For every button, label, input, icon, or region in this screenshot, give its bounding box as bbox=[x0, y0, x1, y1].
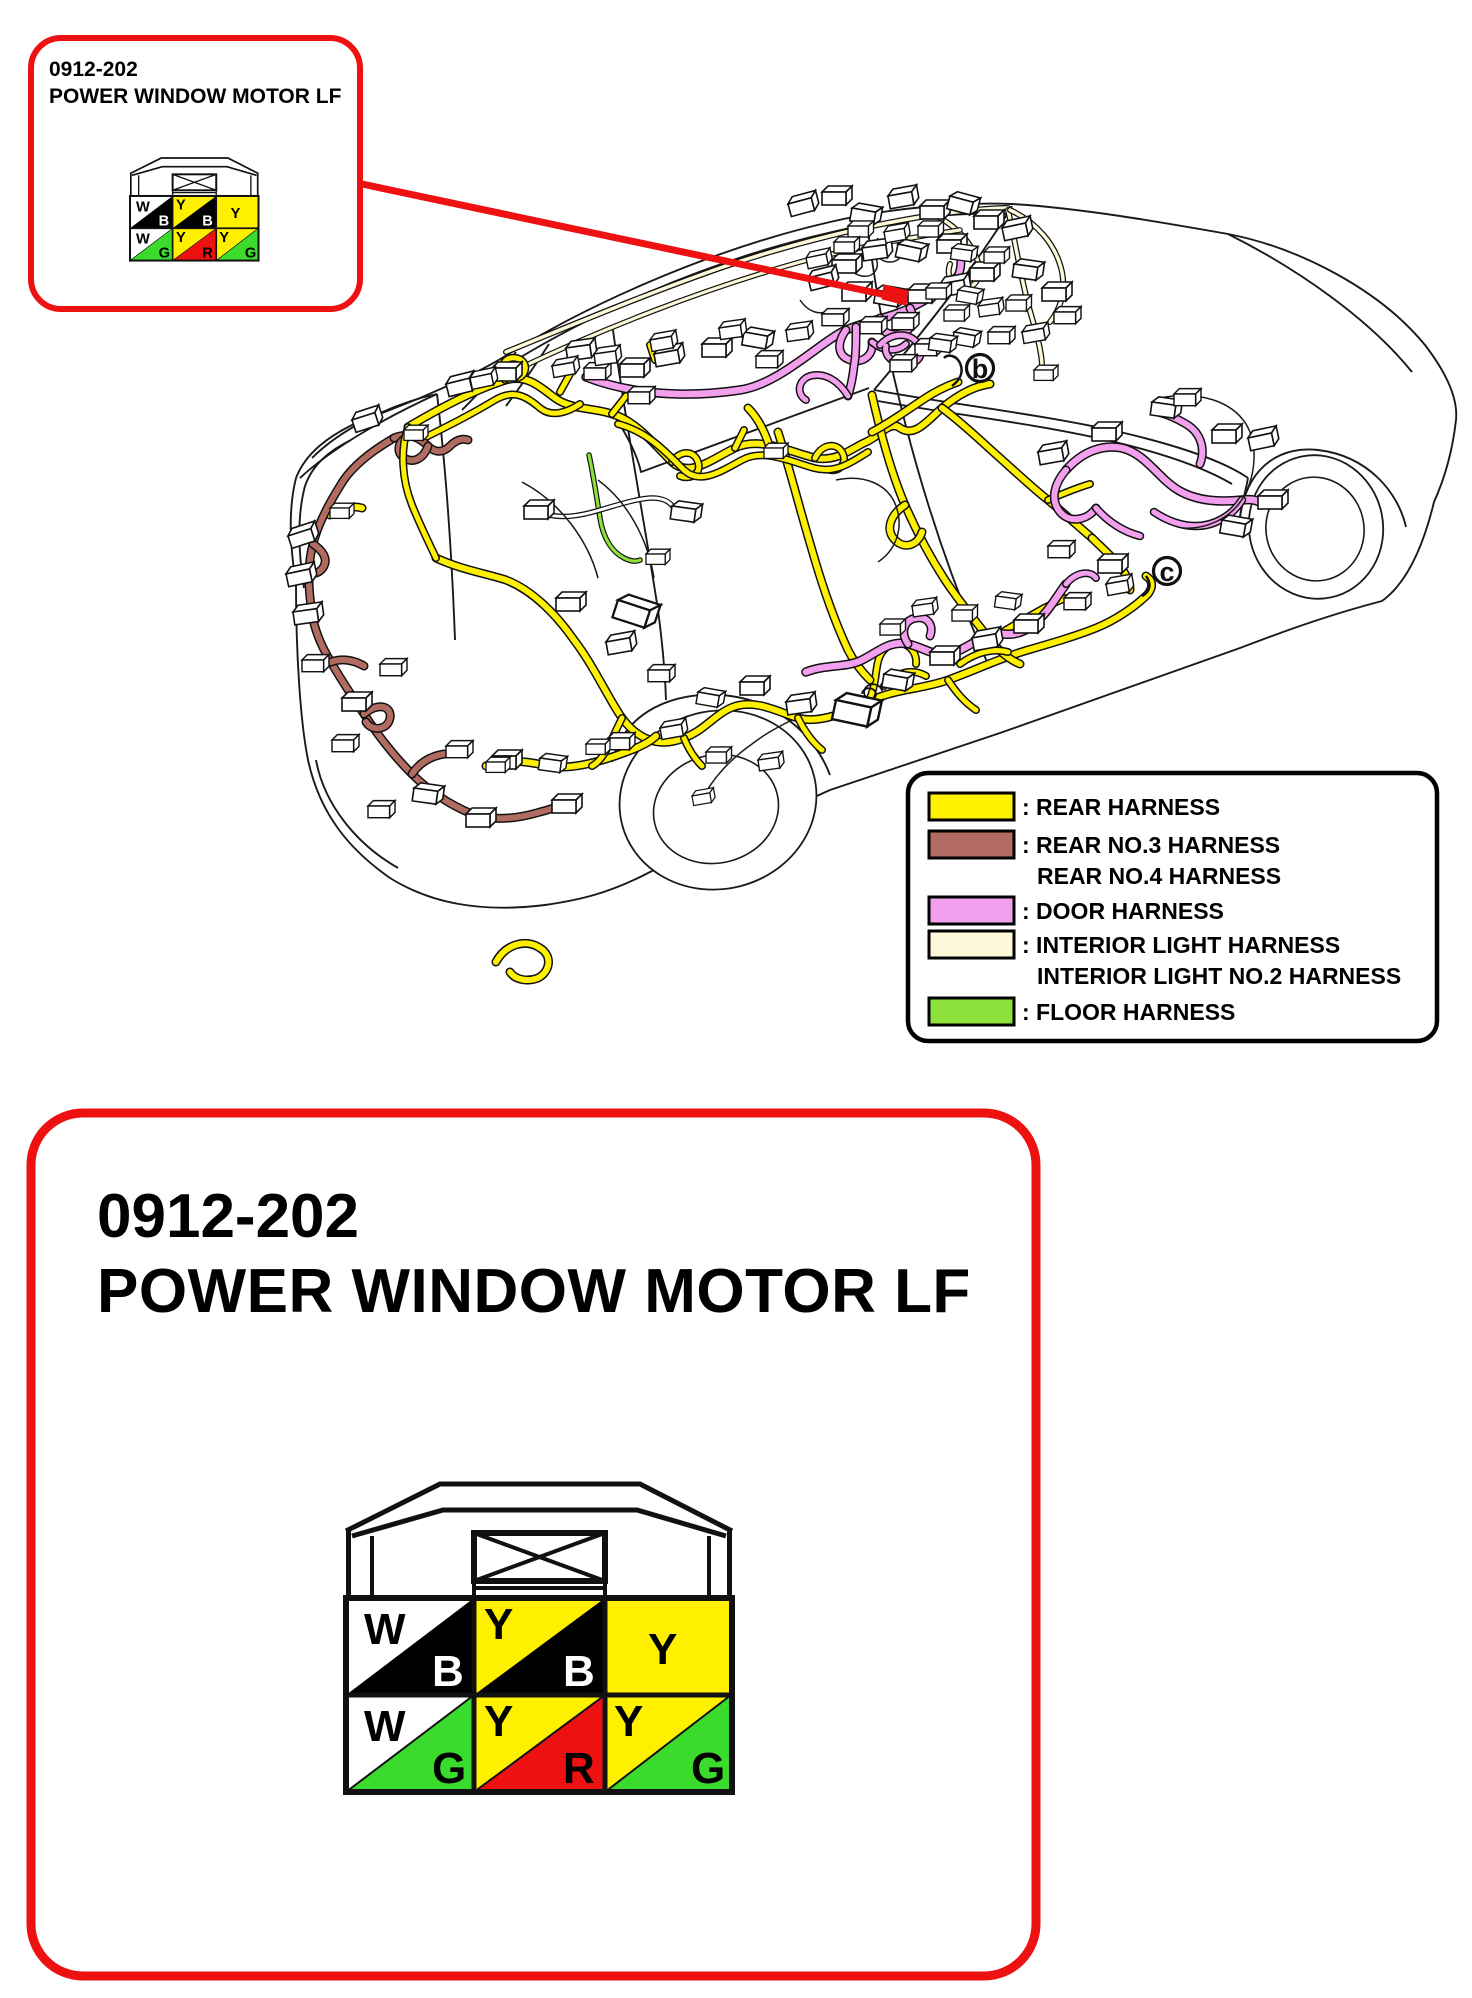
svg-text:: INTERIOR LIGHT HARNESS: : INTERIOR LIGHT HARNESS bbox=[1022, 932, 1340, 958]
svg-text:b: b bbox=[972, 354, 989, 384]
svg-text:: REAR NO.3 HARNESS: : REAR NO.3 HARNESS bbox=[1022, 832, 1280, 858]
svg-text:0912-202: 0912-202 bbox=[97, 1182, 359, 1251]
svg-text:c: c bbox=[1159, 557, 1174, 587]
svg-text:: DOOR HARNESS: : DOOR HARNESS bbox=[1022, 898, 1224, 924]
svg-text:0912-202: 0912-202 bbox=[49, 58, 138, 81]
svg-text:: FLOOR HARNESS: : FLOOR HARNESS bbox=[1022, 999, 1235, 1025]
svg-text:POWER WINDOW MOTOR LF: POWER WINDOW MOTOR LF bbox=[49, 85, 342, 108]
svg-text:REAR NO.4 HARNESS: REAR NO.4 HARNESS bbox=[1037, 863, 1281, 889]
svg-text:: REAR HARNESS: : REAR HARNESS bbox=[1022, 794, 1220, 820]
svg-text:POWER WINDOW MOTOR LF: POWER WINDOW MOTOR LF bbox=[97, 1257, 971, 1326]
svg-text:INTERIOR LIGHT NO.2 HARNESS: INTERIOR LIGHT NO.2 HARNESS bbox=[1037, 963, 1401, 989]
